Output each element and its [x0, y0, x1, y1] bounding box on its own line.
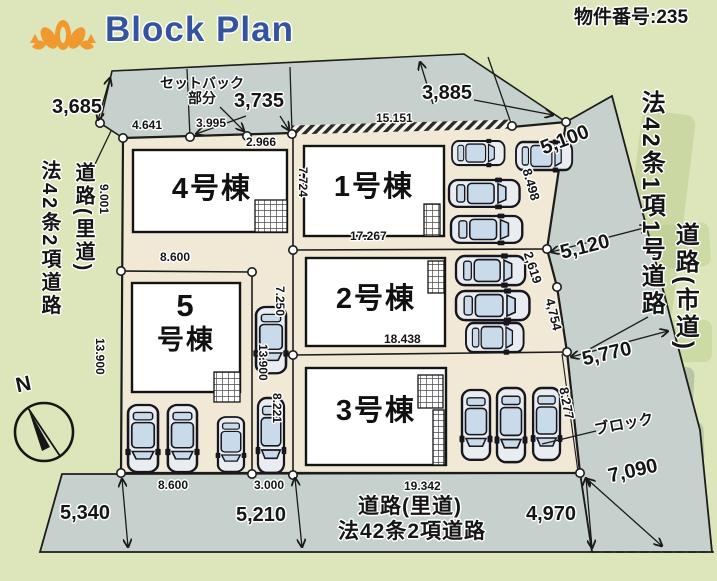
- right-road-law-label: 法42条1項1号道路: [638, 90, 663, 317]
- car-icon: [495, 388, 528, 462]
- bottom-road-law-label: 法42条2項道路: [338, 521, 486, 543]
- dim-7250: 7.250: [273, 286, 286, 316]
- right-road-name-label: 道路(市道): [672, 222, 697, 352]
- dim-13900-center: 13.900: [256, 344, 269, 381]
- car-icon: [449, 178, 520, 210]
- dim-8221: 8.221: [270, 393, 283, 423]
- car-icon: [452, 139, 505, 167]
- dim-3000: 3.000: [254, 479, 284, 492]
- left-road-name-label: 道路(里道): [72, 162, 93, 273]
- dim-4641: 4.641: [132, 119, 162, 132]
- car-icon: [125, 405, 160, 472]
- dim-3885: 3,885: [422, 83, 472, 104]
- building-2-label: 2号棟: [316, 284, 436, 314]
- dim-8600-top: 8.600: [160, 251, 190, 264]
- dim-9001: 9.001: [97, 184, 110, 214]
- car-icon: [460, 390, 493, 460]
- building-3-label: 3号棟: [316, 396, 436, 426]
- building-5-label-suffix: 号棟: [146, 326, 226, 354]
- dim-3685: 3,685: [52, 97, 102, 118]
- dim-13900-left: 13.900: [93, 338, 106, 375]
- page-title: Block Plan: [105, 12, 294, 49]
- building-4-label: 4号棟: [152, 174, 272, 204]
- car-icon: [165, 405, 199, 472]
- left-road-law-label: 法42条2項道路: [38, 160, 59, 317]
- dim-3995: 3.995: [196, 117, 226, 130]
- car-icon: [216, 417, 247, 472]
- car-icon: [451, 214, 522, 246]
- car-icon: [456, 253, 525, 287]
- dim-15151: 15.151: [376, 112, 413, 125]
- dim-17267: 17.267: [350, 230, 387, 243]
- dim-7724: 7.724: [296, 167, 309, 197]
- building-5-label-number: 5: [160, 290, 212, 323]
- dim-8600-bottom: 8.600: [158, 479, 188, 492]
- dim-4970: 4,970: [526, 504, 576, 525]
- block-plan-page: Block Plan 物件番号:235 4号棟 1号棟 2号棟 3号棟 5 号棟…: [0, 0, 717, 581]
- dim-5210: 5,210: [236, 505, 286, 526]
- dim-19342: 19.342: [404, 480, 441, 493]
- car-icon: [456, 288, 529, 322]
- car-icon: [466, 320, 524, 354]
- dim-3735: 3,735: [234, 91, 284, 112]
- bottom-road-name-label: 道路(里道): [358, 496, 462, 518]
- dim-5340: 5,340: [60, 503, 110, 524]
- dim-18438: 18.438: [384, 333, 421, 346]
- building-1-label: 1号棟: [314, 172, 434, 202]
- dim-2966: 2.966: [246, 136, 276, 149]
- property-number: 物件番号:235: [574, 8, 688, 28]
